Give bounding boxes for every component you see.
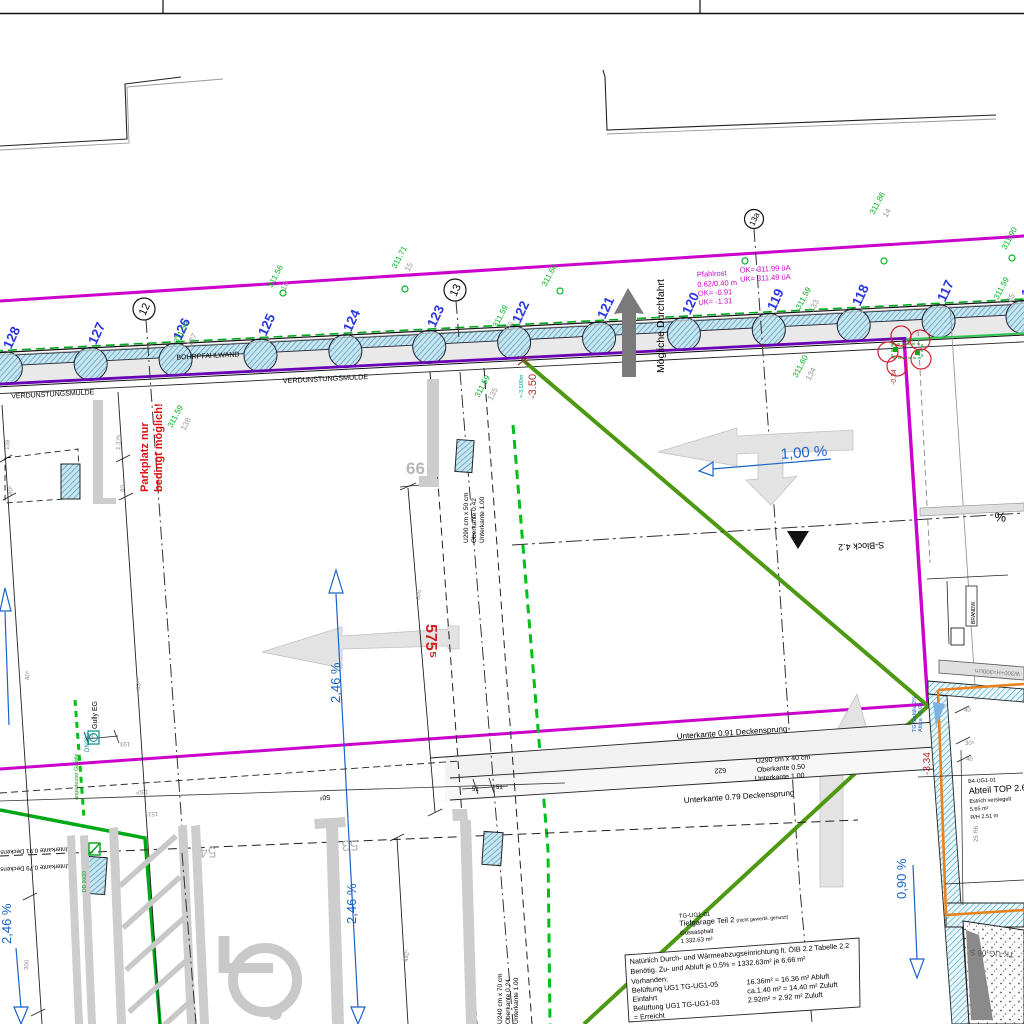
svg-text:193: 193 xyxy=(119,740,130,747)
svg-text:2,46 %: 2,46 % xyxy=(328,662,343,703)
svg-text:Pfahlrost: Pfahlrost xyxy=(697,268,728,279)
svg-text:2,46 %: 2,46 % xyxy=(344,883,359,924)
svg-text:Mögliche Durchfahrt: Mögliche Durchfahrt xyxy=(655,279,667,373)
svg-text:0,90 %: 0,90 % xyxy=(894,858,909,899)
svg-text:151⁵: 151⁵ xyxy=(145,810,158,818)
svg-text:50⁵: 50⁵ xyxy=(319,793,330,801)
svg-text:51: 51 xyxy=(472,787,479,793)
svg-text:angedeutet Gefälle: angedeutet Gefälle xyxy=(74,754,80,800)
svg-text:-3.50: -3.50 xyxy=(527,374,539,399)
svg-text:30⁵: 30⁵ xyxy=(965,740,975,747)
svg-text:Unterkante 1.00: Unterkante 1.00 xyxy=(479,496,486,543)
svg-text:U240 cm x 70 cm: U240 cm x 70 cm xyxy=(497,973,504,1024)
svg-text:2,46 %: 2,46 % xyxy=(0,903,14,944)
svg-text:130⁵: 130⁵ xyxy=(135,788,148,796)
svg-text:40: 40 xyxy=(964,708,971,714)
svg-text:5.65 m²: 5.65 m² xyxy=(970,806,989,813)
svg-text:54: 54 xyxy=(199,843,217,861)
svg-text:622: 622 xyxy=(714,766,726,774)
svg-text:U290 cm x 50 cm: U290 cm x 50 cm xyxy=(463,492,470,543)
svg-text:Attika +0.00: Attika +0.00 xyxy=(918,703,924,732)
svg-text:51: 51 xyxy=(496,785,503,791)
svg-text:=-3.500m: =-3.500m xyxy=(519,374,525,398)
svg-text:40: 40 xyxy=(966,757,973,763)
svg-text:575⁵: 575⁵ xyxy=(422,624,439,658)
svg-text:DD 20/20: DD 20/20 xyxy=(82,871,88,892)
svg-text:139: 139 xyxy=(5,439,12,450)
svg-text:UK= -1.31: UK= -1.31 xyxy=(698,296,732,307)
svg-text:bedingt möglich!: bedingt möglich! xyxy=(153,403,165,492)
svg-text:BRANDW.: BRANDW. xyxy=(971,601,977,624)
svg-text:-0.34: -0.34 xyxy=(891,369,898,385)
svg-text:1.375: 1.375 xyxy=(116,434,123,450)
svg-text:Oberkante 0.24: Oberkante 0.24 xyxy=(505,979,512,1024)
svg-text:80⁵: 80⁵ xyxy=(24,670,32,680)
svg-text:83⁴⁵: 83⁴⁵ xyxy=(135,677,143,690)
svg-text:Gully EG: Gully EG xyxy=(92,701,99,729)
svg-text:80⁵: 80⁵ xyxy=(7,485,15,495)
svg-text:66: 66 xyxy=(406,459,425,478)
svg-text:80: 80 xyxy=(120,484,126,492)
svg-text:Parkplatz nur: Parkplatz nur xyxy=(139,422,151,492)
svg-text:442⁵: 442⁵ xyxy=(403,949,411,962)
svg-text:300: 300 xyxy=(24,959,31,970)
svg-text:25 R6: 25 R6 xyxy=(974,825,980,842)
svg-text:-3.34: -3.34 xyxy=(922,752,933,775)
svg-text:Oberkante 0.42: Oberkante 0.42 xyxy=(471,498,478,543)
svg-text:53: 53 xyxy=(341,836,359,854)
svg-text:605: 605 xyxy=(416,589,423,600)
svg-text:Unterkante 1.00: Unterkante 1.00 xyxy=(513,977,520,1024)
